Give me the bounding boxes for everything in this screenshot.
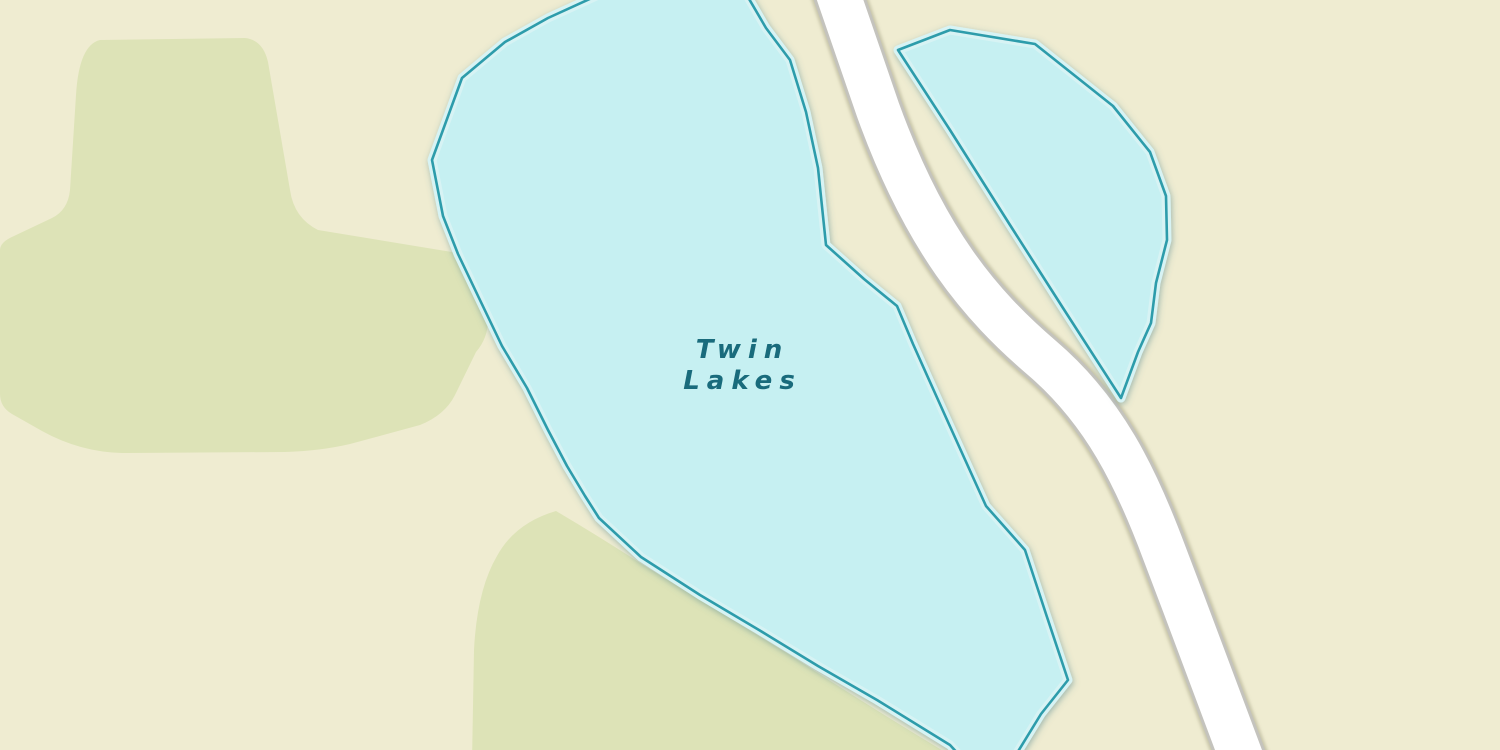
lake-label-line2: Lakes	[676, 366, 802, 397]
lake-label[interactable]: Twin Lakes	[676, 335, 802, 397]
lake-label-line1: Twin	[689, 335, 790, 366]
map-canvas[interactable]: Twin Lakes	[0, 0, 1500, 750]
